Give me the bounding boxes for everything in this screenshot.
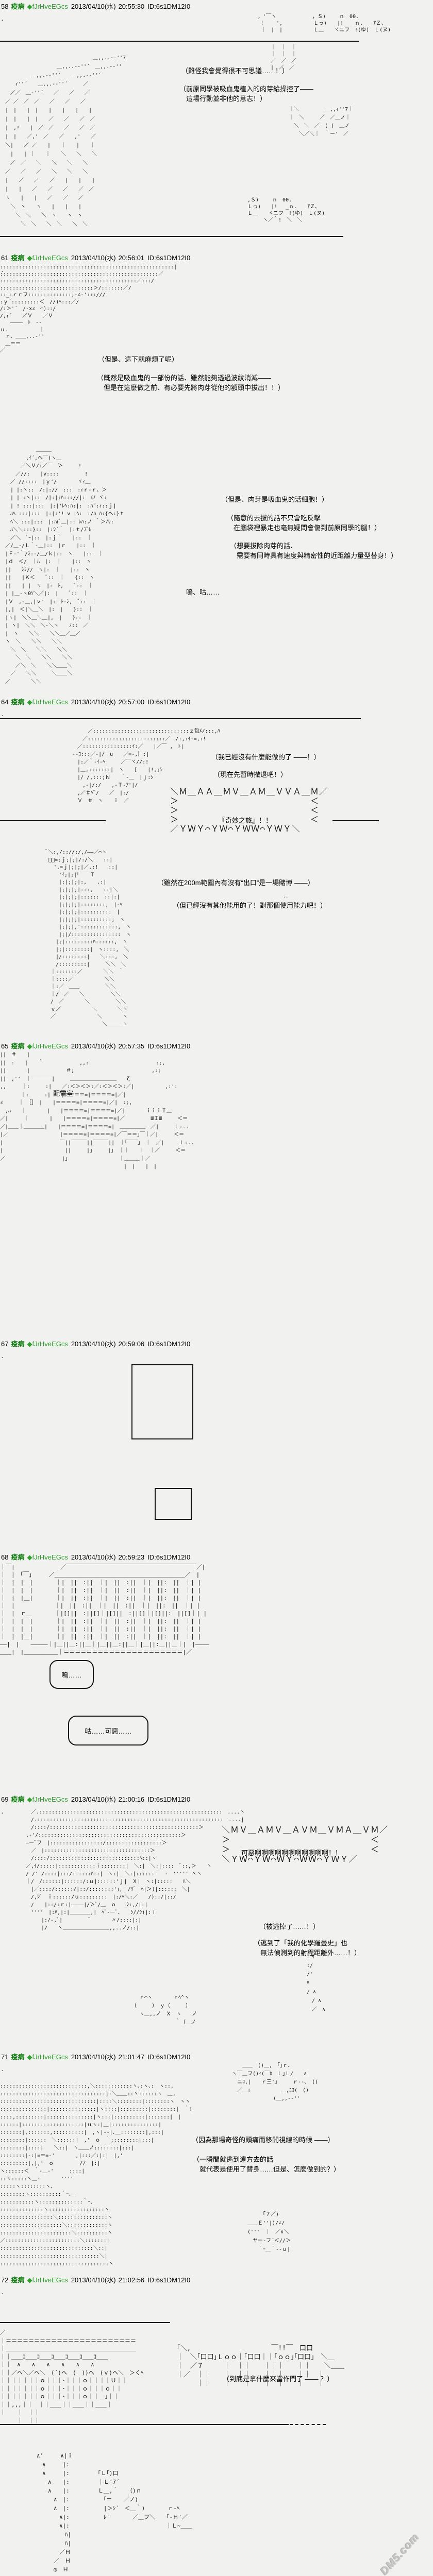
tripcode: ◆fJrHveEGcs	[27, 1553, 68, 1561]
dialogue-text: （既然是吸血鬼的一部份的話、雖然能夠透過波紋消滅—— 但是在這麼做之前、有必要先…	[97, 373, 285, 393]
leading-dot: ．	[1, 1352, 6, 1360]
post-date: 2013/04/10(水)	[71, 2053, 116, 2061]
aa-power-room: || ＃ | || : | ＾ ,,: :;, || | ＃; ,:; || ,…	[0, 1051, 194, 1171]
leading-dot: ．	[1, 14, 6, 22]
post-time: 21:02:56	[119, 2276, 145, 2284]
bubble-text: 可惡啊啊啊啊啊啊啊啊啊啊啊！！	[241, 1848, 342, 1857]
post-67-header: 67疫病◆fJrHveEGcs2013/04/10(水)20:59:06ID:6…	[1, 1338, 190, 1348]
post-61-header: 61疫病◆fJrHveEGcs2013/04/10(水)20:56:01ID:6…	[1, 252, 190, 262]
post-time: 20:59:23	[119, 1553, 145, 1561]
panel-rule	[0, 820, 106, 821]
post-69-header: 69疫病◆fJrHveEGcs2013/04/10(水)21:00:16ID:6…	[1, 1794, 190, 1804]
panel-rule	[0, 41, 359, 42]
post-date: 2013/04/10(水)	[71, 1042, 116, 1050]
poster-name: 疫病	[11, 254, 24, 262]
post-id: ID:6s1DM12I0	[147, 1042, 190, 1050]
post-time: 20:57:00	[119, 698, 145, 706]
aa-gate-fence: ／ ｜＝＝＝＝＝＝＝＝＝＝＝＝＝＝＝＝＝＝＝＝＝＝＝ ｜＿＿＿＿＿＿＿＿＿＿＿＿…	[0, 2329, 143, 2425]
poster-name: 疫病	[11, 2276, 24, 2284]
post-64-header: 64疫病◆fJrHveEGcs2013/04/10(水)20:57:00ID:6…	[1, 697, 190, 706]
post-68-header: 68疫病◆fJrHveEGcs2013/04/10(水)20:59:23ID:6…	[1, 1552, 190, 1562]
bubble-text: 『奇妙之旅』！！	[219, 815, 272, 825]
aa-character-face: ＿＿＿ ,ｲ´,ヘ￣)ヽ＿ ／＼Ｖ/:／￣ ＞ ! ／//: |v:::: ! …	[0, 446, 125, 686]
panel-rule	[0, 236, 343, 237]
post-time: 21:01:47	[119, 2053, 145, 2061]
post-date: 2013/04/10(水)	[71, 698, 116, 706]
dialogue-text: （前原同學被吸血鬼植入的肉芽給操控了—— 這場行動並非他的意志！）	[179, 84, 313, 104]
dialogue-text: （難怪我會覺得很不可思議……！）	[181, 66, 289, 76]
aa-spiky-bubble: ＼ＭＶ＿ＡＭＶ＿ＡＶＭ＿ＶＭＡ＿ＶＭ／ ＞ ＜ ＞ ＜ ＼ＹＷ⌒ＹＷ⌒ＷＹ⌒ＷＷ…	[222, 1825, 388, 1864]
tripcode: ◆fJrHveEGcs	[27, 1042, 68, 1050]
leading-dot: ．	[1, 2065, 6, 2073]
dialogue-text: （隨意的去拔的話不只會吃反擊 在腦袋裡暴走也毫無疑問會傷到前原同學的腦！）	[227, 513, 381, 533]
poster-name: 疫病	[11, 1042, 24, 1050]
grunt-text: 嗚、咕……	[186, 587, 220, 597]
door-sign: 配電室	[53, 1088, 73, 1098]
aa-ear-face: ｜＼ ＿,,ｨ''7｜ ｜ ＼ ／ ／＿ノ｜ ＼ ＼ ／ ( ( ＿ノ ＼／＼｜…	[289, 106, 353, 139]
watermark: DM5.com	[378, 2531, 422, 2576]
post-number: 67	[1, 1340, 8, 1348]
aa-whip-body: ＿,,..-―''7 ＿,,..-‐''´ ＿,,.-‐'' ＿,,.-‐''´…	[0, 54, 126, 229]
post-date: 2013/04/10(水)	[71, 3, 116, 10]
aa-faces: ,Ｓ) ｎ 00. Ｌっ) |! _ｎ. ｱＺ、 Ｌ＿ ヾニフ !(ゆ) Ｌ(ヌ…	[242, 197, 325, 224]
emphasis-dots: ．．	[284, 891, 291, 901]
post-number: 71	[1, 2053, 8, 2061]
post-date: 2013/04/10(水)	[71, 254, 116, 262]
post-time: 20:55:30	[119, 3, 145, 10]
aa-small-face: ＿＿ ()＿, ｢｣ｒ、 ヽ￣＿フ()ｨ(￣ｶ Ｌ｣Ｌ/ ∧ ニｺ,| ｒ三'｣…	[227, 2062, 318, 2103]
dialogue-text: （一瞬間就逃到遠方去的話 就代表是使用了替身……但是、怎麼做到的？）	[193, 2155, 340, 2174]
tripcode: ◆fJrHveEGcs	[27, 2276, 68, 2284]
post-id: ID:6s1DM12I0	[147, 2276, 190, 2284]
post-number: 61	[1, 254, 8, 262]
panel-rule	[0, 2322, 170, 2323]
aa-smoke-puffs: ｒ⌒ヽ ｒﾍ^ヽ （ ） ｙ（ ） ヽ＿,,ノ Ｘ ヽ ノ ｀（＿ノ	[129, 1994, 197, 2027]
poster-name: 疫病	[11, 3, 24, 10]
speech-bubble: 咕……可惡……	[68, 1716, 148, 1745]
speech-bubble: 嗚……	[49, 1660, 94, 1689]
aa-stand-figure: ﾞ＼:,/:://:/,/――／⌒ヽ ﾞ＼=;ｊ;|;|/:/＼ ::| ',=…	[45, 849, 131, 1028]
aa-whip-handle: ，'￣ヽ ，Ｓ) ｎ 00. ！ ', Ｌっ) |! _ｎ. ｱＺ、 ｜ | |…	[258, 13, 391, 33]
post-71-header: 71疫病◆fJrHveEGcs2013/04/10(水)21:01:47ID:6…	[1, 2052, 190, 2061]
post-number: 65	[1, 1042, 8, 1050]
panel-rule	[0, 2424, 289, 2425]
aa-bottom-scene: ∧' ∧|ｉ ∧ |: ∧ |: ｢Ｌ｢)口 ∧ |: ｜Ｌ'7´ ∧ |: Ｌ…	[31, 2451, 192, 2576]
post-number: 68	[1, 1553, 8, 1561]
post-time: 20:56:01	[119, 254, 145, 262]
poster-name: 疫病	[11, 1340, 24, 1348]
post-date: 2013/04/10(水)	[71, 1340, 116, 1348]
post-58-header: 58疫病◆fJrHveEGcs2013/04/10(水)20:55:30ID:6…	[1, 1, 190, 11]
aa-profile-shading: ::::::::::::::::::::::::::::::::::::::::…	[0, 264, 177, 354]
bubble-text: 嗚……	[61, 1670, 81, 1680]
dialogue-text: （我已經沒有什麼能做的了 ——！）	[211, 752, 321, 762]
aa-legs: ：ﾘ :/ /' ﾊ / ∧ / ∧ ／ ∧	[307, 1953, 325, 2014]
panel-rule	[332, 820, 379, 821]
panel-rule	[0, 718, 361, 719]
tripcode: ◆fJrHveEGcs	[27, 1340, 68, 1348]
panel-rule-dashed	[290, 2424, 326, 2425]
post-time: 21:00:16	[119, 1795, 145, 1803]
poster-name: 疫病	[11, 698, 24, 706]
dialogue-text: （被逃掉了……！）	[259, 1922, 320, 1931]
tripcode: ◆fJrHveEGcs	[27, 254, 68, 262]
dialogue-text: （但是、這下就麻煩了呢）	[98, 354, 178, 364]
post-date: 2013/04/10(水)	[71, 1795, 116, 1803]
leading-dot: ．	[1, 1807, 6, 1815]
dialogue-text: （因為那場奇怪的頭痛而移開視線的時候 ——）	[192, 2135, 335, 2145]
tripcode: ◆fJrHveEGcs	[27, 1795, 68, 1803]
bubble-text: 咕……可惡……	[85, 1726, 131, 1736]
leading-dot: ．	[1, 2288, 6, 2296]
post-id: ID:6s1DM12I0	[147, 254, 190, 262]
post-number: 69	[1, 1795, 8, 1803]
aa-spiky-bubble: ＼Ｍ＿ＡＡ＿ＭＶ＿ＡＭ＿ＶＶＡ＿Ｍ／ ＞ ＜ ＞ ＜ ＞ ＜ ／ＹＷＹ⌒ＹＷ⌒Ｙ…	[170, 787, 328, 834]
dialogue-text: （雖然在200m範圍內有沒有“出口”是一場賭博 ——）	[157, 878, 314, 888]
post-id: ID:6s1DM12I0	[147, 1340, 190, 1348]
dialogue-text: （但已經沒有其他能用的了！對那個使用能力吧！）	[173, 901, 327, 910]
post-id: ID:6s1DM12I0	[147, 1553, 190, 1561]
poster-name: 疫病	[11, 1795, 24, 1803]
dialogue-text: （到底是拿什麼來當作門了 —— ？）	[223, 2374, 334, 2384]
tripcode: ◆fJrHveEGcs	[27, 3, 68, 10]
leading-dot: ．	[1, 710, 6, 718]
post-65-header: 65疫病◆fJrHveEGcs2013/04/10(水)20:57:35ID:6…	[1, 1041, 190, 1050]
thread-page: 58疫病◆fJrHveEGcs2013/04/10(水)20:55:30ID:6…	[0, 0, 433, 2576]
post-time: 20:57:35	[119, 1042, 145, 1050]
dialogue-text: （但是、肉芽是吸血鬼的活細胞！）	[221, 495, 328, 504]
post-number: 72	[1, 2276, 8, 2284]
poster-name: 疫病	[11, 1553, 24, 1561]
post-number: 58	[1, 3, 8, 10]
map-box-small	[155, 1488, 192, 1520]
aa-hair-shading: ::::::::::::::::::::::::::::,＼::::::::::…	[0, 2082, 192, 2268]
aa-hand: ｢７／) ＿＿Ｅ''|)/∠/ ('''￣｜ ／∧＼ ヤー-フ´＜//＞ ｀ｰ＿…	[242, 2210, 291, 2254]
post-number: 64	[1, 698, 8, 706]
dialogue-text: （現在先暫時撤退吧！）	[213, 770, 287, 779]
post-id: ID:6s1DM12I0	[147, 1795, 190, 1803]
aa-corridor-lockers: ｜￣| ／￣￣￣￣￣￣￣￣￣￣￣￣￣￣￣￣￣￣￣￣￣￣￣／| ｜ | ｢￣｣ ／…	[0, 1563, 209, 1656]
post-id: ID:6s1DM12I0	[147, 3, 190, 10]
post-date: 2013/04/10(水)	[71, 1553, 116, 1561]
dialogue-text: （想要拔除肉芽的話、 需要有同時具有速度與精密性的近距離力量型替身！）	[230, 541, 397, 561]
post-72-header: 72疫病◆fJrHveEGcs2013/04/10(水)21:02:56ID:6…	[1, 2275, 190, 2284]
post-id: ID:6s1DM12I0	[147, 2053, 190, 2061]
tripcode: ◆fJrHveEGcs	[27, 698, 68, 706]
post-date: 2013/04/10(水)	[71, 2276, 116, 2284]
post-time: 20:59:06	[119, 1340, 145, 1348]
tripcode: ◆fJrHveEGcs	[27, 2053, 68, 2061]
poster-name: 疫病	[11, 2053, 24, 2061]
map-box-large	[131, 1364, 193, 1439]
post-id: ID:6s1DM12I0	[147, 698, 190, 706]
aa-figure-back: ／.::::::::::::::::::::::::::::::::::::::…	[26, 1808, 245, 1932]
